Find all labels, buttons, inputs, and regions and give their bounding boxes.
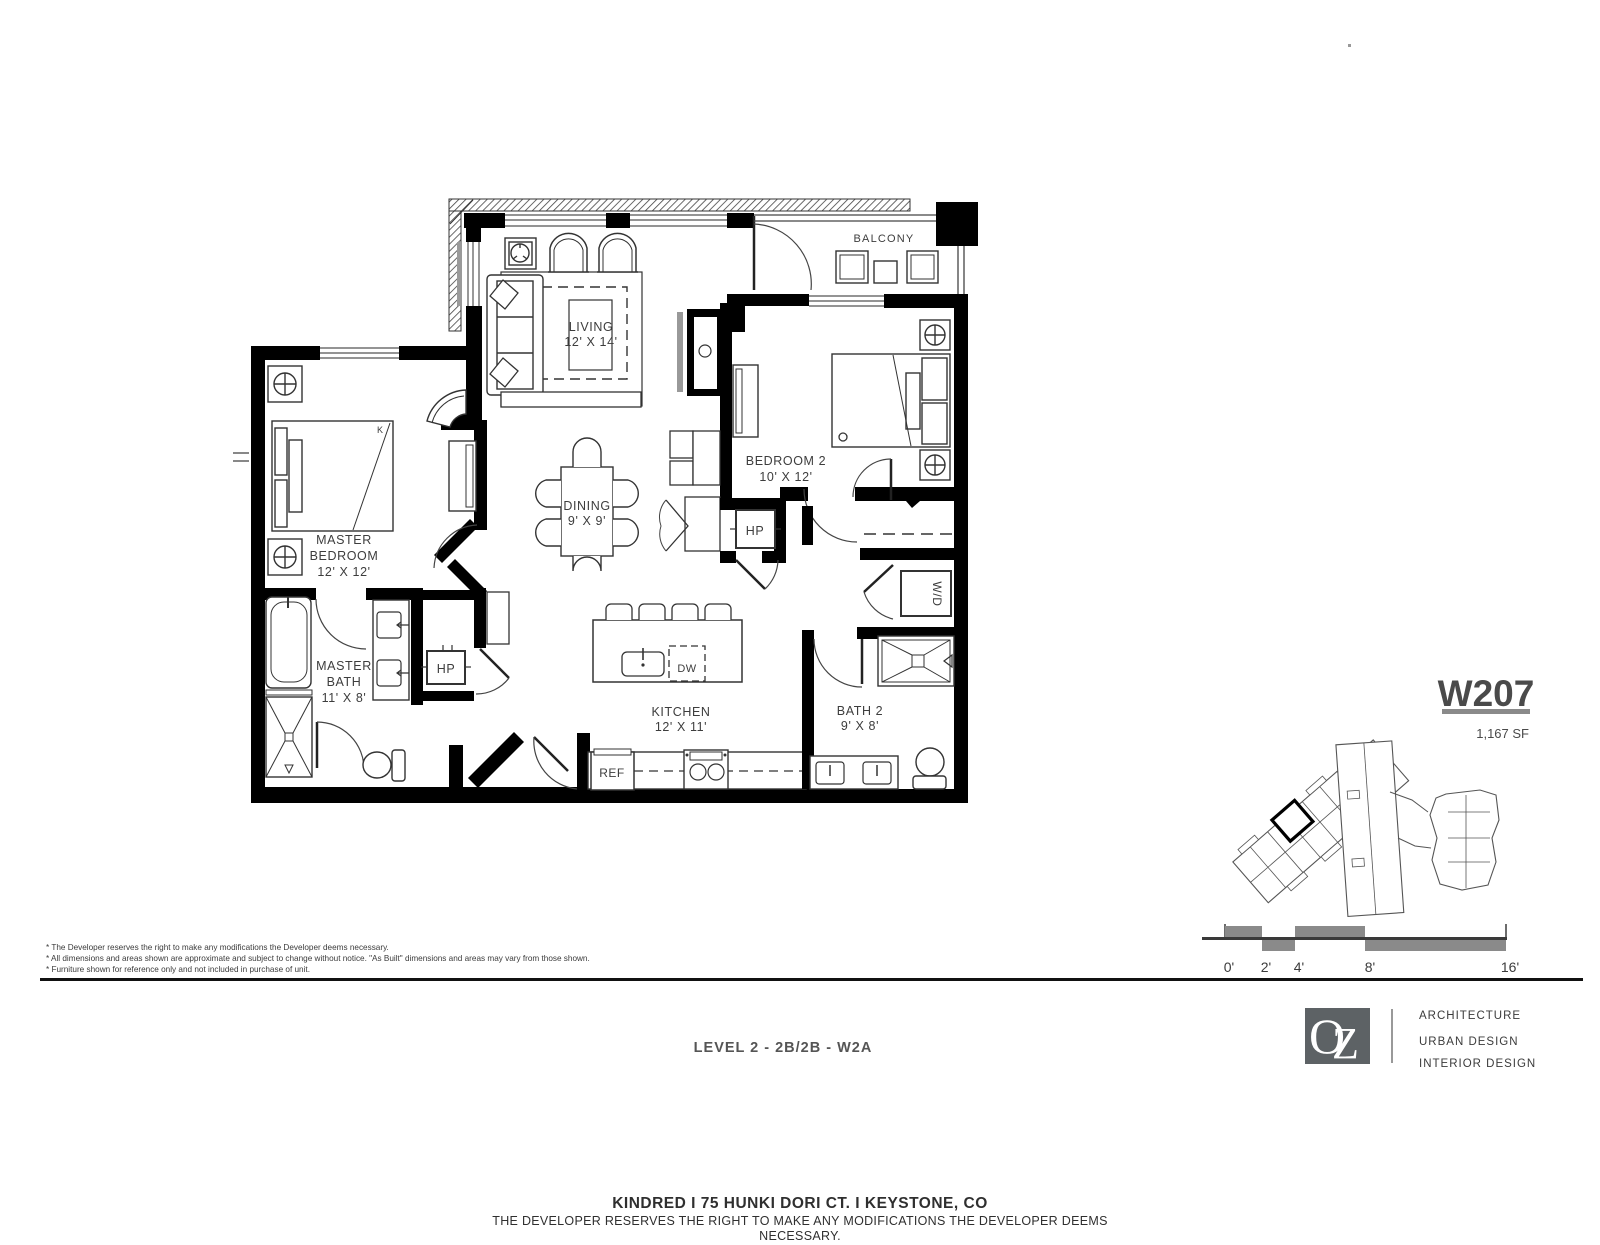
svg-text:KITCHEN: KITCHEN bbox=[651, 705, 710, 719]
svg-text:HP: HP bbox=[437, 662, 456, 676]
svg-text:BATH 2: BATH 2 bbox=[837, 704, 883, 718]
svg-text:INTERIOR DESIGN: INTERIOR DESIGN bbox=[1419, 1058, 1536, 1070]
svg-text:URBAN DESIGN: URBAN DESIGN bbox=[1419, 1036, 1519, 1048]
svg-text:8': 8' bbox=[1365, 959, 1375, 975]
svg-text:HP: HP bbox=[746, 524, 765, 538]
svg-text:* The Developer reserves the r: * The Developer reserves the right to ma… bbox=[46, 943, 389, 952]
svg-text:REF: REF bbox=[599, 766, 625, 780]
svg-text:DW: DW bbox=[677, 663, 696, 675]
svg-text:BEDROOM: BEDROOM bbox=[310, 549, 379, 563]
svg-text:KINDRED I 75 HUNKI DORI CT. I: KINDRED I 75 HUNKI DORI CT. I KEYSTONE, … bbox=[612, 1195, 988, 1212]
svg-text:12' X 12': 12' X 12' bbox=[317, 565, 370, 579]
svg-text:BATH: BATH bbox=[327, 675, 362, 689]
svg-text:ARCHITECTURE: ARCHITECTURE bbox=[1419, 1010, 1521, 1022]
svg-text:11' X 8': 11' X 8' bbox=[322, 691, 367, 705]
svg-text:MASTER: MASTER bbox=[316, 659, 372, 673]
svg-text:W207: W207 bbox=[1438, 673, 1535, 714]
svg-text:9' X 8': 9' X 8' bbox=[841, 719, 879, 733]
svg-text:0': 0' bbox=[1224, 959, 1234, 975]
svg-text:1,167 SF: 1,167 SF bbox=[1476, 726, 1529, 741]
svg-text:* All dimensions and areas sho: * All dimensions and areas shown are app… bbox=[46, 954, 590, 963]
svg-text:MASTER: MASTER bbox=[316, 533, 372, 547]
svg-text:9' X 9': 9' X 9' bbox=[568, 514, 606, 528]
svg-text:Z: Z bbox=[1332, 1019, 1359, 1068]
svg-text:W/D: W/D bbox=[930, 581, 944, 606]
svg-text:LIVING: LIVING bbox=[569, 320, 614, 334]
svg-text:THE DEVELOPER RESERVES THE RIG: THE DEVELOPER RESERVES THE RIGHT TO MAKE… bbox=[492, 1214, 1107, 1228]
svg-text:K: K bbox=[377, 425, 383, 435]
svg-text:NECESSARY.: NECESSARY. bbox=[759, 1229, 841, 1243]
svg-text:2': 2' bbox=[1261, 959, 1271, 975]
svg-text:10' X 12': 10' X 12' bbox=[759, 470, 812, 484]
svg-text:16': 16' bbox=[1501, 959, 1519, 975]
svg-text:BEDROOM 2: BEDROOM 2 bbox=[746, 454, 826, 468]
svg-text:BALCONY: BALCONY bbox=[854, 233, 915, 245]
svg-text:12' X 11': 12' X 11' bbox=[655, 720, 707, 734]
svg-text:DINING: DINING bbox=[563, 499, 610, 513]
svg-text:LEVEL 2 - 2B/2B - W2A: LEVEL 2 - 2B/2B - W2A bbox=[694, 1040, 873, 1056]
svg-text:* Furniture shown for referenc: * Furniture shown for reference only and… bbox=[46, 965, 310, 974]
svg-text:4': 4' bbox=[1294, 959, 1304, 975]
svg-text:12' X 14': 12' X 14' bbox=[564, 335, 617, 349]
